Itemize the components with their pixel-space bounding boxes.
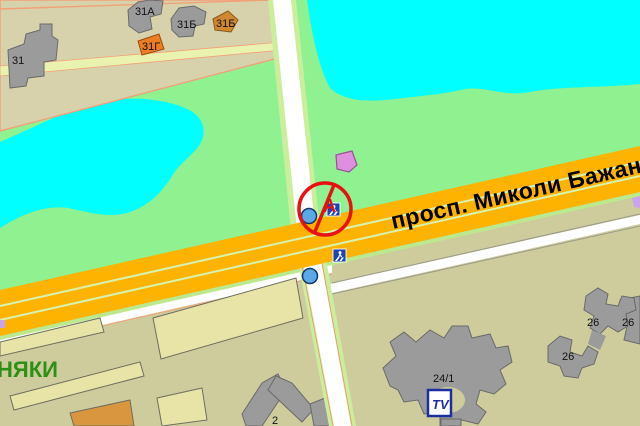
building-label-31b1: 31Б — [177, 19, 196, 31]
no-entry-letter: А — [323, 196, 336, 216]
building-label-31g: 31Г — [142, 41, 160, 53]
building-label-31: 31 — [12, 55, 24, 67]
purple-poi-west — [0, 320, 5, 328]
tv-poi-icon[interactable]: TV — [428, 390, 451, 416]
building — [441, 419, 461, 426]
bus-stop-icon[interactable] — [303, 269, 318, 284]
building-label-24-1: 24/1 — [433, 373, 454, 385]
tv-poi-label: TV — [432, 397, 450, 412]
pedestrian-crossing-icon[interactable] — [333, 249, 346, 262]
building-label-26-3: 26 — [562, 351, 574, 363]
map-canvas[interactable]: просп. Миколи Бажана НЯКИ 31 31А 31Б 31Г… — [0, 0, 640, 426]
building-label-31b2: 31Б — [216, 18, 235, 30]
building-label-26-1: 26 — [587, 317, 599, 329]
lake-northeast — [307, 0, 640, 101]
building-label-2: 2 — [272, 415, 278, 426]
building-label-26-2: 26 — [622, 317, 634, 329]
map-viewport[interactable]: просп. Миколи Бажана НЯКИ 31 31А 31Б 31Г… — [0, 0, 640, 426]
district-name-label: НЯКИ — [0, 357, 58, 382]
building-label-31a: 31А — [135, 6, 155, 18]
